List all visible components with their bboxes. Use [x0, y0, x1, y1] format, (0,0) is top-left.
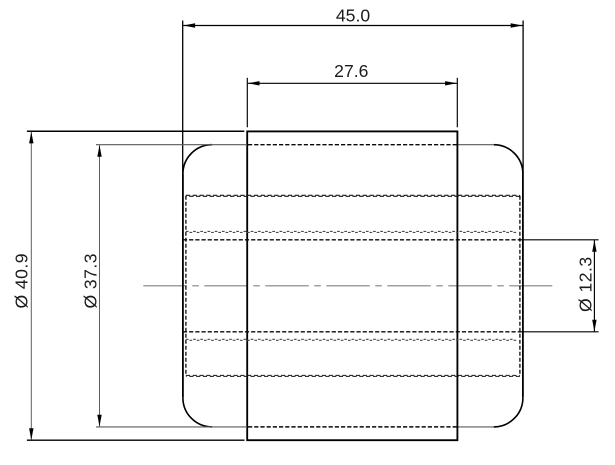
- svg-text:Ø 37.3: Ø 37.3: [80, 253, 100, 309]
- svg-text:Ø 12.3: Ø 12.3: [576, 256, 596, 312]
- svg-text:45.0: 45.0: [336, 5, 370, 25]
- svg-text:Ø 40.9: Ø 40.9: [12, 253, 32, 309]
- svg-text:27.6: 27.6: [334, 61, 368, 81]
